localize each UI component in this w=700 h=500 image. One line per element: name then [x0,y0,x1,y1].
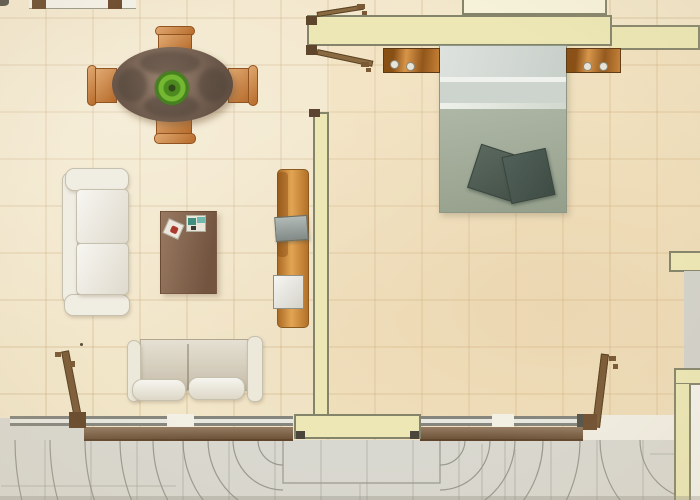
door-handle [366,68,371,72]
door-handle [357,4,365,9]
knob [599,62,608,71]
door-handle [361,62,369,67]
coffee-table [160,211,217,294]
place-setting [117,68,147,102]
knob [390,60,399,69]
door-jamb [69,412,86,428]
door-hinge [306,16,317,25]
top-wall-niche [462,0,607,15]
sofa-cushion [76,189,129,244]
media-box [273,275,304,309]
sofa-cushion [76,243,129,295]
window-frame-post [108,0,122,9]
plant-icon [155,71,189,105]
door-hinge [613,364,618,369]
door-hinge [609,356,616,361]
footing-pad [296,431,305,439]
right-wall-stub [669,251,700,272]
cabinet-shadow [277,172,288,257]
floor-plan-canvas [0,0,700,500]
door-jamb [583,414,597,430]
partition-wall [313,112,329,417]
door-hinge [306,45,317,55]
place-setting [198,68,228,102]
cup [197,217,205,223]
dining-chair [154,133,196,144]
dining-chair [248,65,258,106]
terrace-paving [0,440,700,500]
window-frame-post [32,0,46,9]
glazing-opening [167,414,194,427]
glazing-opening [492,414,514,427]
cup [188,218,196,225]
terrace-sill [84,427,293,441]
scan-edge [0,496,700,500]
door-hinge [55,352,61,357]
nightstand [383,48,440,73]
terrace-corner-wall [674,368,700,385]
sofa-armrest [64,294,130,316]
nightstand [566,48,621,73]
partition-footing [294,414,421,439]
red-item [170,225,179,234]
knob [583,62,592,71]
sofa-armrest [65,168,129,191]
glazing-track [10,423,293,426]
sofa-seam [187,344,189,390]
sofa-armrest [247,336,263,402]
terrace-corner-wall [674,384,691,500]
bed-pillows [440,46,566,79]
knob [406,62,415,71]
footing-pad [410,431,419,439]
tray [186,215,206,232]
partition-end-post [309,109,320,117]
sofa-cushion [188,377,245,400]
scan-speck [80,343,83,346]
top-wall [307,15,612,46]
bed [439,45,567,213]
cup [191,226,196,230]
door-handle [362,11,367,15]
tv [274,215,309,242]
door-hinge [70,361,75,367]
exterior-strip [684,271,700,368]
tray [162,218,184,240]
bed-cushion [502,148,556,204]
top-wall-step [612,25,700,50]
terrace-sill [420,427,583,441]
sofa-cushion [132,379,186,401]
exterior-strip [691,385,700,500]
window [29,0,136,9]
